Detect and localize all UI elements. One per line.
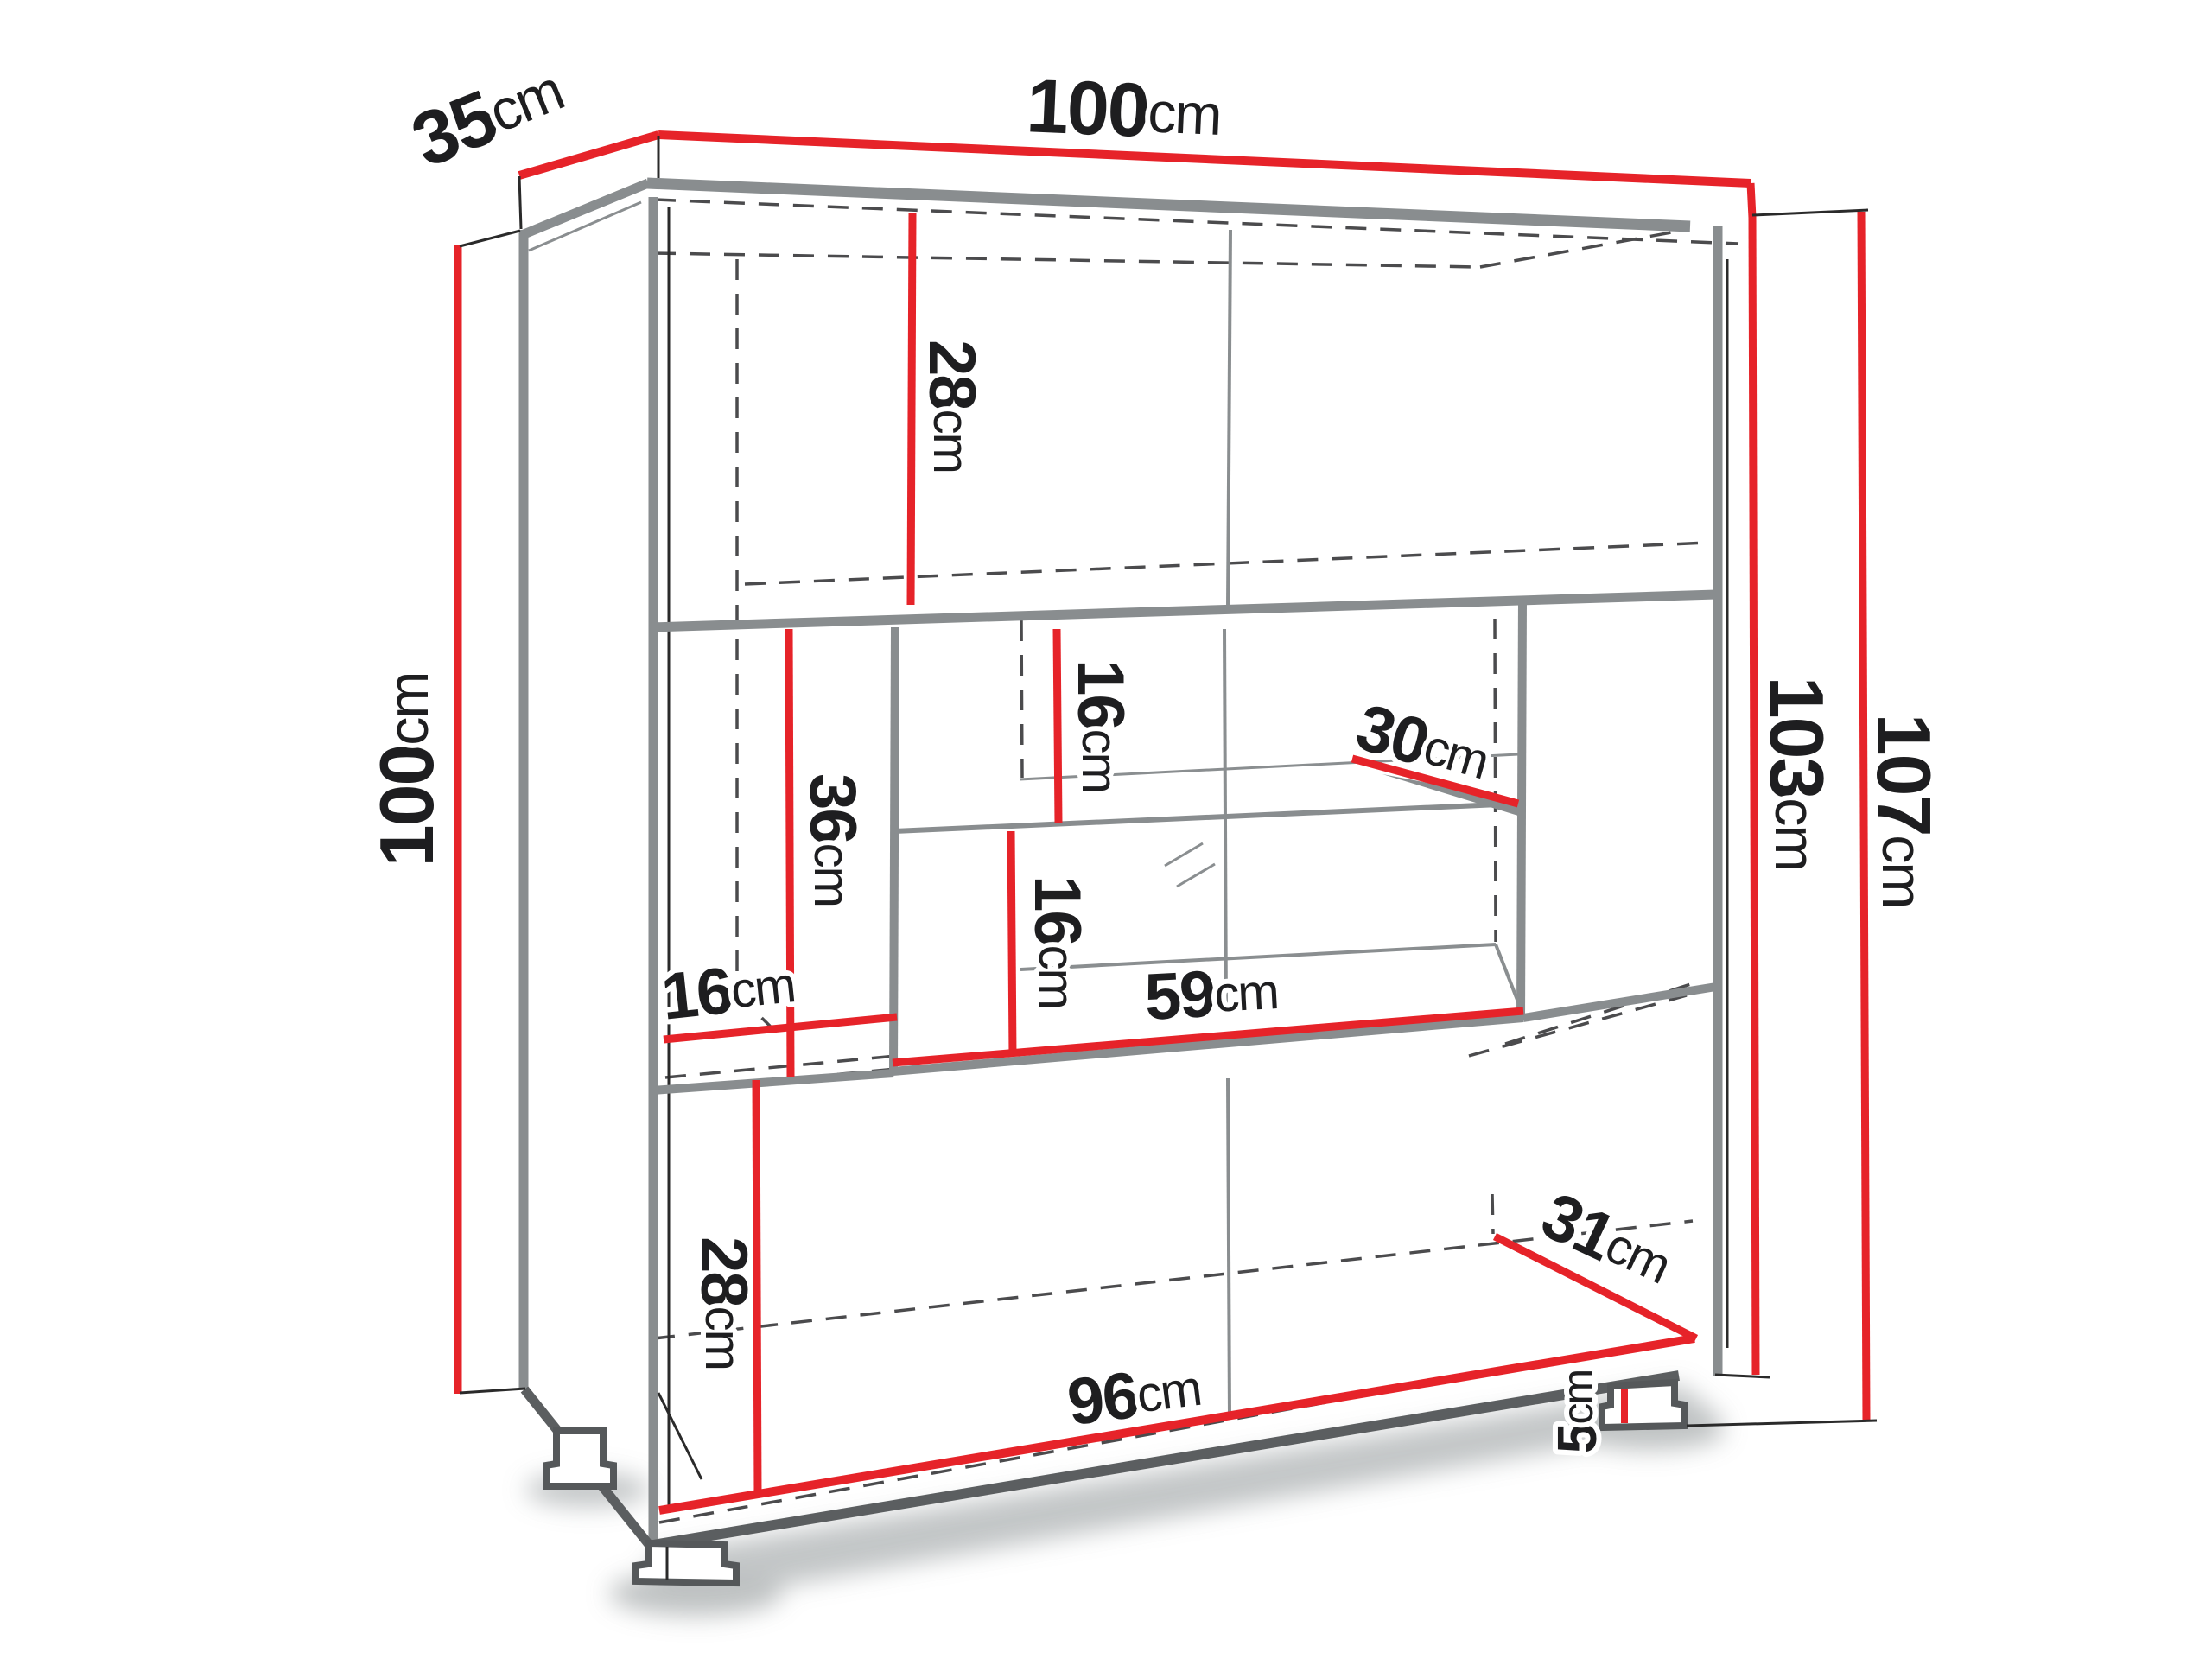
label-display-upper: 16cm [1064,659,1137,792]
svg-text:59cm: 59cm [1143,954,1280,1034]
svg-text:28cm: 28cm [687,1236,760,1370]
dimension-labels: 35cm 100cm 100cm 103cm 107cm 28cm 16cm 3… [364,47,1947,1453]
svg-text:16cm: 16cm [658,947,798,1034]
label-display-width: 59cm [1143,954,1280,1034]
svg-text:100cm: 100cm [364,673,449,868]
upper-16-line [1057,629,1058,823]
label-left-compartment-width: 16cm [658,947,798,1034]
extension-ticks [460,136,1877,1426]
bottom-back-right-corner-dashed [1492,1194,1493,1234]
lower-16-line [1011,831,1013,1056]
label-foot-height: 5cm [1546,1370,1608,1453]
label-top-section: 28cm [915,340,988,473]
inner-top-right-depth-dashed [1480,230,1686,267]
glass-mark-1 [1165,843,1203,866]
label-width-top: 100cm [1025,62,1223,156]
shelf-a-front-edge [650,594,1716,627]
glass-shelf-front-edge [894,804,1518,831]
label-left-compartment-height: 36cm [796,773,869,906]
bottom-section-divider [1228,1078,1230,1417]
label-height-left: 100cm [364,673,449,868]
svg-text:28cm: 28cm [915,340,988,473]
shelf-b-right-depth-dashed-2 [1469,995,1687,1056]
shelf-b-left-front-edge [652,1073,893,1090]
svg-text:103cm: 103cm [1754,677,1840,871]
svg-text:31cm: 31cm [1531,1179,1682,1301]
tick-100-top [460,231,520,246]
top-28-line [911,213,912,605]
case-back-left-corner-dashed [1021,620,1022,778]
label-body-height-right: 103cm [1754,677,1840,871]
front-bottom-left-accent [658,1393,702,1479]
display-case-right-wall [1521,600,1522,1020]
tick-35-left [519,176,521,229]
display-case-left-wall [893,627,895,1071]
glass-mark-2 [1177,864,1215,887]
inner-top-front-edge-dashed [655,253,1480,267]
top-section-divider [1228,230,1230,607]
right-foot [1602,1382,1685,1427]
svg-text:107cm: 107cm [1861,714,1947,908]
tick-103-bottom [1715,1375,1770,1377]
label-total-height-right: 107cm [1861,714,1947,908]
depth-35-line [519,135,658,175]
left-back-foot [546,1431,613,1486]
cabinet-diagram-svg: 35cm 100cm 100cm 103cm 107cm 28cm 16cm 3… [0,0,2212,1659]
svg-text:16cm: 16cm [1020,875,1094,1008]
tick-103-107-top [1752,210,1868,215]
label-bottom-depth: 31cm [1531,1179,1682,1301]
label-display-lower: 16cm [1020,875,1094,1008]
svg-text:16cm: 16cm [1064,659,1137,792]
furniture-dimension-diagram: 35cm 100cm 100cm 103cm 107cm 28cm 16cm 3… [0,0,2212,1659]
svg-text:100cm: 100cm [1025,62,1223,156]
label-bottom-section: 28cm [687,1236,760,1370]
svg-text:5cm: 5cm [1546,1370,1608,1453]
case-back-right-corner-dashed [1495,619,1496,942]
tick-100-bottom [460,1389,525,1393]
width-line-right-drop [1751,183,1752,218]
svg-text:36cm: 36cm [796,773,869,906]
left-front-foot [636,1543,736,1583]
